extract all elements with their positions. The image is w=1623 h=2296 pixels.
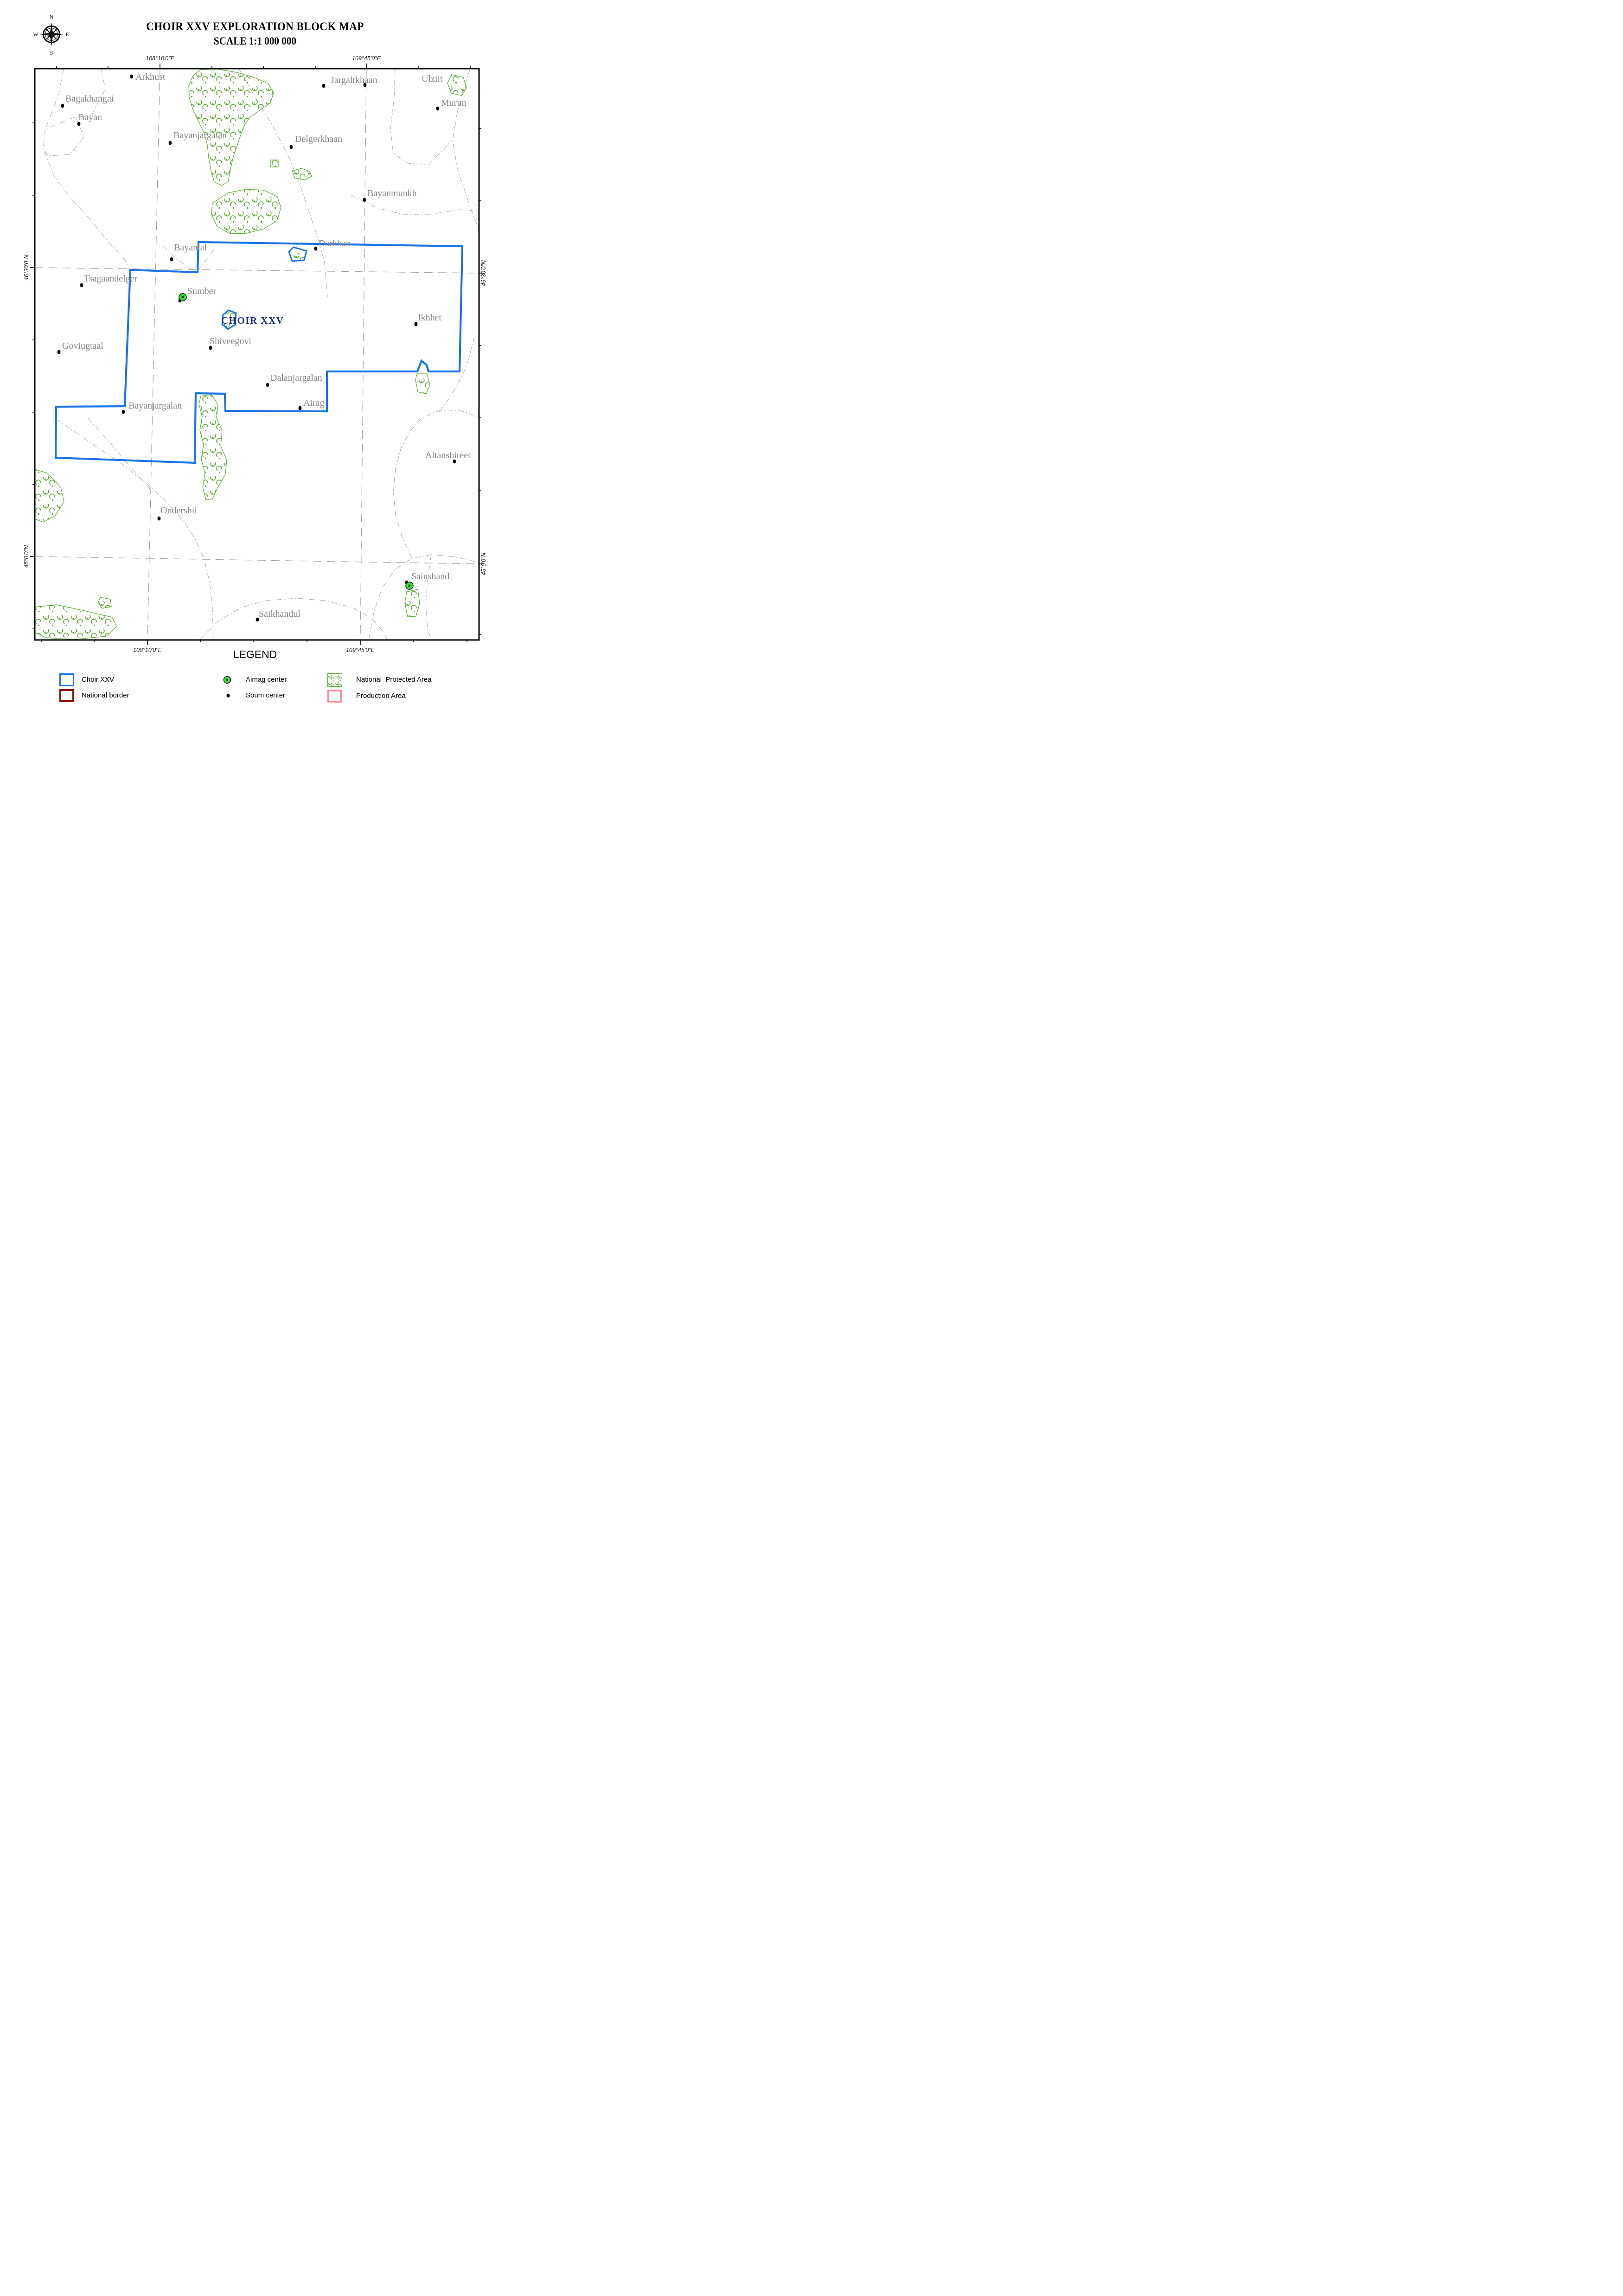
- soum-center-dot: [299, 406, 302, 410]
- gridline: [360, 69, 366, 640]
- protected-areas: [35, 69, 466, 640]
- town-label: Delgerkhaan: [295, 134, 342, 144]
- town-label: Darkhan: [319, 238, 351, 249]
- soum-center-dot: [122, 410, 125, 414]
- map-border: [35, 69, 479, 640]
- town-label: Ondershil: [160, 505, 197, 516]
- soum-center-dot: [80, 283, 83, 288]
- protected-area: [211, 189, 281, 234]
- graticule-lines: [35, 69, 479, 640]
- town-label: Ulziit: [422, 74, 443, 84]
- choir-block-island: [289, 247, 307, 261]
- soum-center-dot: [363, 198, 366, 202]
- legend-soum-label: Soum center: [246, 689, 285, 702]
- admin-boundary: [199, 598, 387, 640]
- town-label: Bayanmunkh: [367, 188, 417, 198]
- town-label: Murun: [441, 98, 466, 108]
- map-page: CHOIR XXV EXPLORATION BLOCK MAP SCALE 1:…: [0, 0, 510, 722]
- soum-center-dot: [322, 84, 326, 88]
- town-label: Sainshand: [411, 571, 449, 582]
- soum-center-dot: [170, 257, 173, 262]
- soum-center-dot: [169, 141, 172, 145]
- town-label: Tsagaandelger: [84, 274, 138, 284]
- town-label: Sumber: [187, 286, 217, 296]
- town-label: Arkhust: [135, 72, 166, 82]
- latitude-label-left: 45°0'0"N: [23, 545, 30, 568]
- longitude-label-bottom: 109°45'0"E: [346, 647, 375, 653]
- legend-aimag-label: Aimag center: [246, 673, 287, 686]
- town-label: Airag: [303, 398, 325, 408]
- legend-choir-label: Choir XXV: [82, 673, 114, 686]
- latitude-label-right: 45°0'0"N: [480, 552, 487, 576]
- soum-center-dot: [158, 517, 161, 521]
- soum-center-dot: [436, 107, 440, 111]
- protected-area: [415, 374, 430, 394]
- soum-center-dot: [415, 322, 418, 326]
- town-label: Ikhhet: [418, 313, 442, 323]
- admin-boundary: [88, 418, 153, 492]
- protected-area: [270, 160, 278, 167]
- aimag-center-inner-dot: [409, 585, 411, 587]
- gridline: [35, 268, 479, 273]
- town-label: Saikhandul: [259, 609, 300, 619]
- protected-area: [292, 168, 312, 180]
- town-markers: ArkhustBagakhangaiBayanBayanjargalanDelg…: [58, 72, 471, 621]
- town-label: Bayan: [78, 112, 102, 122]
- protected-area: [98, 597, 111, 608]
- protected-area: [35, 469, 64, 522]
- admin-boundary: [56, 419, 213, 640]
- admin-boundary: [426, 555, 431, 640]
- legend-soum-icon: [225, 693, 231, 698]
- soum-center-dot: [314, 247, 318, 251]
- protected-area: [199, 395, 227, 500]
- gridline: [35, 556, 479, 564]
- soum-center-dot: [61, 104, 64, 108]
- legend-national-border-label: National border: [82, 689, 129, 702]
- legend-heading: LEGEND: [209, 648, 301, 661]
- legend-choir-swatch: [59, 673, 74, 686]
- soum-center-dot: [266, 383, 269, 387]
- soum-center-dot: [130, 75, 134, 79]
- town-label: Bagakhangai: [65, 94, 114, 104]
- admin-boundary: [393, 410, 479, 558]
- town-label: Bayanjargalan: [173, 130, 227, 141]
- soum-center-dot: [58, 350, 61, 354]
- town-label: Goviugtaal: [62, 341, 103, 351]
- aimag-center-inner-dot: [182, 296, 184, 299]
- legend-protected-swatch: [327, 673, 342, 687]
- town-label: Dalanjargalan: [270, 373, 322, 383]
- admin-boundary: [435, 337, 474, 412]
- latitude-label-right: 46°30'0"N: [480, 260, 487, 286]
- choir-block-label: CHOIR XXV: [221, 315, 284, 326]
- admin-boundaries: [43, 69, 479, 640]
- protected-area: [447, 75, 466, 96]
- graticule-ticks: [30, 64, 484, 645]
- legend-national-border-swatch: [59, 689, 74, 702]
- map-frame: [35, 69, 479, 640]
- latitude-label-left: 46°30'0"N: [23, 254, 30, 281]
- town-label: Shiveegovi: [210, 336, 251, 346]
- legend-protected-label: National Protected Area: [356, 673, 432, 686]
- legend-production-label: Production Area: [356, 690, 406, 703]
- protected-area: [189, 69, 274, 185]
- town-label: Jargaltkhaan: [331, 75, 377, 85]
- longitude-label-top: 109°45'0"E: [352, 55, 381, 62]
- town-label: Bayantal: [174, 243, 207, 253]
- soum-center-dot: [364, 83, 367, 87]
- protected-area: [405, 589, 420, 617]
- town-label: Altanshireet: [425, 450, 471, 460]
- protected-area: [35, 605, 116, 640]
- map-canvas: CHOIR XXV ArkhustBagakhangaiBayanBayanja…: [0, 0, 510, 722]
- soum-center-dot: [290, 145, 293, 149]
- longitude-label-top: 108°10'0"E: [146, 55, 175, 62]
- admin-boundary: [197, 249, 214, 272]
- legend-aimag-icon: [223, 675, 232, 684]
- town-label: Bayanjargalan: [128, 401, 182, 411]
- coordinate-labels: 108°10'0"E109°45'0"E108°10'0"E109°45'0"E…: [23, 55, 487, 653]
- legend-production-swatch: [327, 690, 342, 703]
- gridline: [147, 69, 160, 640]
- longitude-label-bottom: 108°10'0"E: [133, 647, 162, 653]
- admin-boundary: [369, 555, 479, 640]
- admin-boundary: [45, 69, 64, 129]
